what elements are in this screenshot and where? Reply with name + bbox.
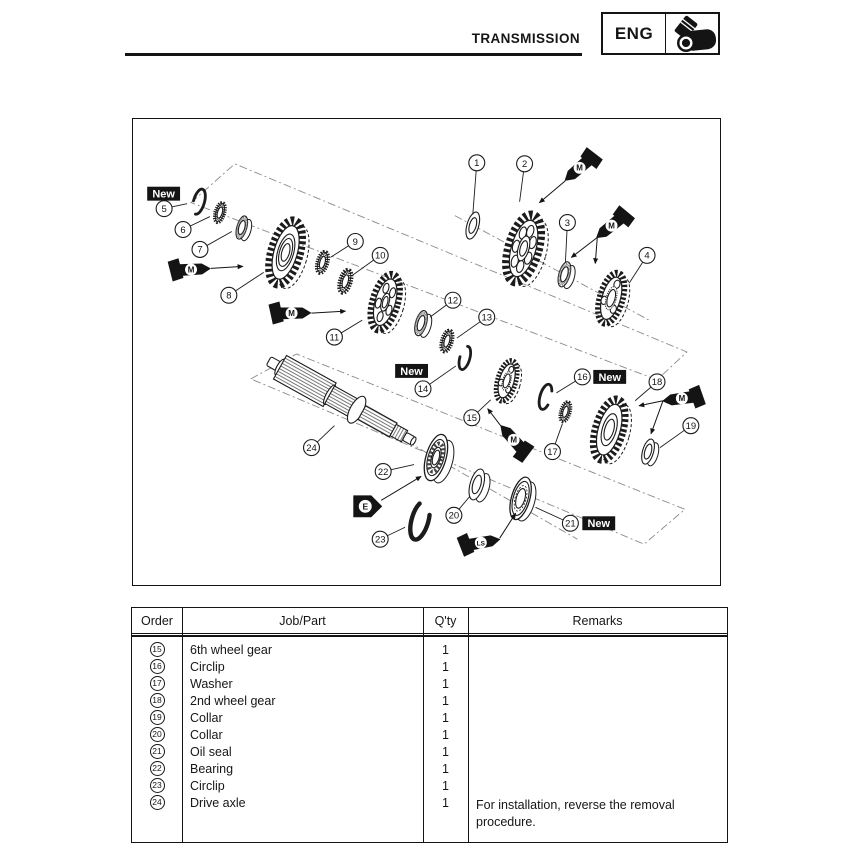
order-number: 15 bbox=[150, 642, 165, 657]
svg-text:M: M bbox=[288, 309, 295, 318]
svg-text:M: M bbox=[679, 394, 686, 403]
part-qty: 1 bbox=[423, 762, 468, 776]
callout-4: 4 bbox=[629, 247, 655, 283]
part-qty: 1 bbox=[423, 728, 468, 742]
grease-symbol-LS: LS bbox=[456, 527, 502, 557]
svg-text:24: 24 bbox=[306, 443, 317, 454]
col-jobpart: Job/Part bbox=[182, 614, 423, 628]
svg-text:M: M bbox=[510, 436, 517, 445]
part-name: Collar bbox=[182, 728, 423, 742]
callout-20: 20 bbox=[446, 496, 470, 523]
svg-text:21: 21 bbox=[565, 519, 576, 530]
circlip-5 bbox=[190, 188, 208, 216]
callout-18: 18 bbox=[635, 374, 665, 401]
new-label: New bbox=[593, 370, 626, 384]
part-name: 2nd wheel gear bbox=[182, 694, 423, 708]
svg-text:18: 18 bbox=[652, 377, 663, 388]
callout-15: 15 bbox=[464, 400, 491, 426]
part-name: Circlip bbox=[182, 660, 423, 674]
new-label: New bbox=[147, 187, 180, 201]
svg-text:22: 22 bbox=[378, 467, 389, 478]
part-name: Oil seal bbox=[182, 745, 423, 759]
svg-text:LS: LS bbox=[477, 540, 486, 547]
part-name: Drive axle bbox=[182, 796, 423, 810]
callout-12: 12 bbox=[430, 292, 461, 317]
grease-symbol-M: M bbox=[589, 203, 637, 248]
table-row: 16Circlip1 bbox=[132, 658, 727, 675]
svg-text:4: 4 bbox=[644, 251, 649, 262]
part-qty: 1 bbox=[423, 796, 468, 810]
table-row: 21Oil seal1 bbox=[132, 743, 727, 760]
part-qty: 1 bbox=[423, 643, 468, 657]
part-qty: 1 bbox=[423, 711, 468, 725]
table-row: 182nd wheel gear1 bbox=[132, 692, 727, 709]
callout-8: 8 bbox=[221, 272, 264, 303]
callout-5: 5 bbox=[156, 201, 187, 217]
svg-text:New: New bbox=[152, 189, 175, 201]
grease-symbol-M: M bbox=[168, 257, 212, 282]
svg-text:23: 23 bbox=[375, 534, 386, 545]
svg-text:16: 16 bbox=[577, 372, 588, 383]
part-qty: 1 bbox=[423, 660, 468, 674]
svg-text:20: 20 bbox=[449, 511, 460, 522]
callout-24: 24 bbox=[304, 426, 335, 456]
svg-text:New: New bbox=[400, 366, 423, 378]
svg-text:19: 19 bbox=[686, 421, 696, 432]
order-number: 21 bbox=[150, 744, 165, 759]
svg-text:E: E bbox=[362, 501, 368, 511]
callout-3: 3 bbox=[559, 215, 575, 263]
new-label: New bbox=[395, 364, 428, 378]
installation-remark: For installation, reverse the removal pr… bbox=[476, 797, 716, 830]
svg-text:12: 12 bbox=[448, 296, 459, 307]
part-name: Circlip bbox=[182, 779, 423, 793]
part-qty: 1 bbox=[423, 694, 468, 708]
callout-16: 16 bbox=[556, 369, 590, 393]
part-qty: 1 bbox=[423, 677, 468, 691]
table-row: 17Washer1 bbox=[132, 675, 727, 692]
callout-13: 13 bbox=[457, 309, 495, 338]
svg-text:7: 7 bbox=[197, 245, 202, 256]
part-name: Collar bbox=[182, 711, 423, 725]
manual-page: TRANSMISSION ENG bbox=[0, 0, 858, 858]
grease-symbol-M: M bbox=[491, 418, 537, 465]
svg-text:17: 17 bbox=[547, 447, 557, 458]
svg-text:10: 10 bbox=[375, 251, 386, 262]
table-row: 19Collar1 bbox=[132, 709, 727, 726]
svg-text:3: 3 bbox=[565, 218, 570, 229]
callout-23: 23 bbox=[372, 527, 405, 547]
diagram-frame: MMMMMMLSE 123456789101112131415161718192… bbox=[132, 118, 721, 586]
oil-symbol-E: E bbox=[353, 495, 382, 517]
order-number: 18 bbox=[150, 693, 165, 708]
chapter-box: ENG bbox=[601, 12, 720, 55]
page-title: TRANSMISSION bbox=[125, 31, 580, 46]
svg-text:6: 6 bbox=[180, 225, 185, 236]
exploded-diagram: MMMMMMLSE 123456789101112131415161718192… bbox=[133, 119, 720, 585]
svg-text:5: 5 bbox=[162, 204, 167, 215]
lubricant-symbols: MMMMMMLSE bbox=[168, 145, 707, 558]
callout-1: 1 bbox=[469, 155, 485, 215]
col-remarks: Remarks bbox=[468, 614, 727, 628]
part-qty: 1 bbox=[423, 779, 468, 793]
main-axle-parts bbox=[190, 188, 661, 467]
svg-text:New: New bbox=[588, 518, 611, 530]
callout-17: 17 bbox=[544, 424, 562, 460]
circlip-23 bbox=[406, 499, 433, 542]
new-label: New bbox=[582, 516, 615, 530]
callout-9: 9 bbox=[330, 234, 363, 258]
svg-text:New: New bbox=[598, 372, 621, 384]
order-number: 22 bbox=[150, 761, 165, 776]
callout-6: 6 bbox=[175, 217, 210, 238]
part-name: 6th wheel gear bbox=[182, 643, 423, 657]
part-qty: 1 bbox=[423, 745, 468, 759]
svg-text:15: 15 bbox=[467, 413, 478, 424]
order-number: 20 bbox=[150, 727, 165, 742]
part-name: Washer bbox=[182, 677, 423, 691]
callout-2: 2 bbox=[517, 156, 533, 202]
chapter-code: ENG bbox=[603, 14, 666, 53]
table-row: 22Bearing1 bbox=[132, 760, 727, 777]
table-row: 20Collar1 bbox=[132, 726, 727, 743]
grease-symbol-M: M bbox=[557, 145, 604, 190]
table-body: 156th wheel gear116Circlip117Washer1182n… bbox=[132, 637, 727, 811]
part-name: Bearing bbox=[182, 762, 423, 776]
svg-text:M: M bbox=[576, 164, 583, 173]
svg-text:M: M bbox=[188, 265, 195, 274]
table-header: Order Job/Part Q'ty Remarks bbox=[132, 608, 727, 634]
circlip-14 bbox=[457, 345, 473, 371]
svg-text:M: M bbox=[608, 221, 615, 230]
circlip-16 bbox=[537, 383, 555, 411]
svg-text:2: 2 bbox=[522, 159, 527, 170]
order-number: 19 bbox=[150, 710, 165, 725]
col-order: Order bbox=[132, 614, 182, 628]
order-number: 17 bbox=[150, 676, 165, 691]
svg-text:1: 1 bbox=[474, 158, 479, 169]
header-rule bbox=[125, 53, 582, 56]
order-number: 16 bbox=[150, 659, 165, 674]
svg-text:9: 9 bbox=[353, 237, 358, 248]
svg-text:11: 11 bbox=[329, 332, 339, 343]
parts-table: Order Job/Part Q'ty Remarks 156th wheel … bbox=[131, 607, 728, 843]
callout-19: 19 bbox=[660, 418, 699, 448]
table-row: 156th wheel gear1 bbox=[132, 641, 727, 658]
svg-text:14: 14 bbox=[418, 384, 429, 395]
grease-symbol-M: M bbox=[661, 384, 707, 413]
order-number: 23 bbox=[150, 778, 165, 793]
table-row: 23Circlip1 bbox=[132, 777, 727, 794]
col-qty: Q'ty bbox=[423, 614, 468, 628]
svg-text:13: 13 bbox=[481, 312, 492, 323]
svg-text:8: 8 bbox=[226, 291, 231, 302]
callout-11: 11 bbox=[326, 320, 362, 345]
order-number: 24 bbox=[150, 795, 165, 810]
callout-22: 22 bbox=[375, 464, 414, 480]
callout-7: 7 bbox=[192, 232, 232, 258]
engine-cylinder-icon bbox=[666, 14, 718, 53]
grease-symbol-M: M bbox=[268, 301, 311, 325]
